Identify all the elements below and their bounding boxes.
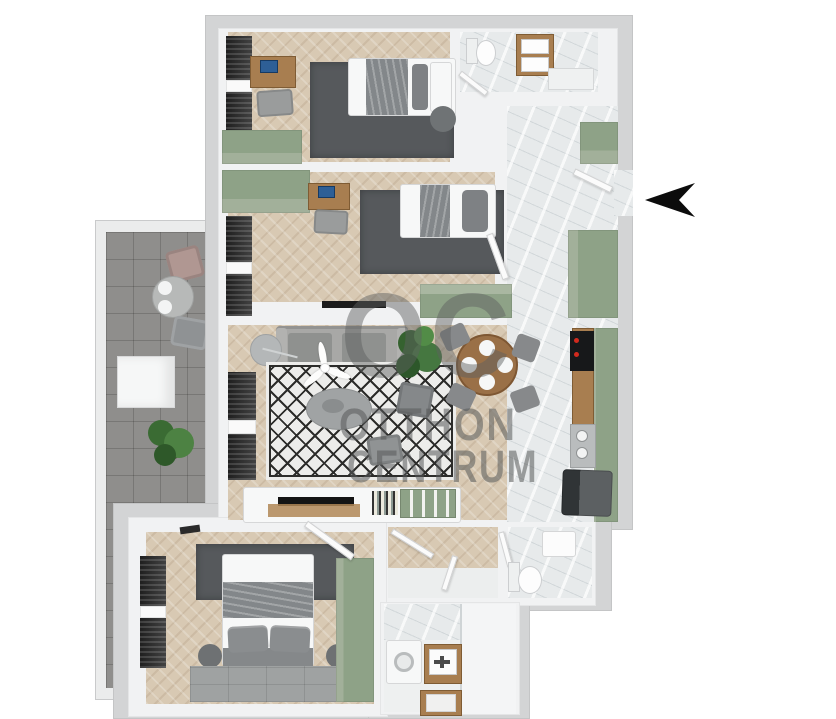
wc-toilet-bowl [518,566,542,594]
bedroom3-curtain [140,618,166,668]
balcony-plate [158,281,172,295]
entrance-opening [614,170,633,216]
bedroom2-curtain [226,274,252,316]
bedroom3-ottoman [198,644,222,668]
shower-tray [548,68,594,90]
balcony-plant [154,444,176,466]
shoe-cabinet [580,122,618,164]
armchair-pouf [395,381,434,418]
balcony-table [152,276,194,318]
bedroom3-rug [190,666,342,702]
console-books [372,491,398,515]
bedroom1-window [226,80,252,92]
bedroom3-wardrobe [336,558,374,702]
bedroom1-curtain [226,92,252,134]
bathroom-wall-tile [384,604,460,640]
bedroom2-laptop [318,186,335,198]
living-plant [414,326,434,346]
dining-plate [479,374,495,390]
bedroom1-chair [256,89,294,117]
washing-machine-door [394,652,414,672]
bedroom1-cushion [412,64,428,110]
living-window [228,420,256,434]
console-boxes [400,489,456,518]
bedroom1-pillow [430,62,452,112]
cooktop-burner [574,352,579,357]
tv-mat [268,504,360,517]
vanity-sink [521,57,549,72]
pouf [366,434,404,466]
bedroom3-window [140,606,166,618]
bedroom1-wardrobe [222,130,302,164]
bedroom1-laptop [260,60,278,73]
wc-basin [542,531,576,557]
cooktop [570,331,595,371]
balcony-plate [158,300,172,314]
bedroom3-pillow [227,625,268,653]
kitchen-sink-bowl [576,447,588,459]
vanity-sink [521,39,549,54]
cooktop-burner [574,338,579,343]
bedroom3-pillow [269,625,310,653]
bedroom2-curtain [226,216,252,262]
living-plant [396,354,420,378]
entrance-arrow-icon [643,181,697,219]
fridge [561,469,613,517]
shower-area [460,604,516,714]
living-curtain [228,434,256,480]
bedroom3-blanket [223,582,313,618]
coffee-table-tray [322,399,344,413]
bedroom2-blanket [420,185,450,237]
hall-wardrobe [568,230,618,318]
dining-plate [497,357,513,373]
bedroom1-pouf [430,106,456,132]
bedroom3-curtain [140,556,166,606]
dining-plate [461,357,477,373]
bedroom2-pillow [462,190,488,232]
bathroom-faucet [434,660,450,664]
bedroom2-window [226,262,252,274]
living-curtain [228,372,256,420]
wall-tv [322,301,386,308]
sofa-cushion [342,333,386,363]
bathroom-mirror [426,694,456,712]
kitchen-sink-bowl [576,430,588,442]
bedroom1-blanket [366,59,408,115]
floor-plan: OC OTTHON CENTRUM [0,0,836,719]
bottom-hall-floor [388,527,498,568]
dining-plate [479,340,495,356]
balcony-storage-box [117,356,175,408]
bedroom2-chair [313,209,348,235]
bedroom1-curtain [226,36,252,80]
bedroom2-wardrobe [222,170,310,213]
toilet-bowl [476,40,496,66]
ceiling-fan-hub [320,363,330,373]
kitchen-sideboard [420,284,512,318]
